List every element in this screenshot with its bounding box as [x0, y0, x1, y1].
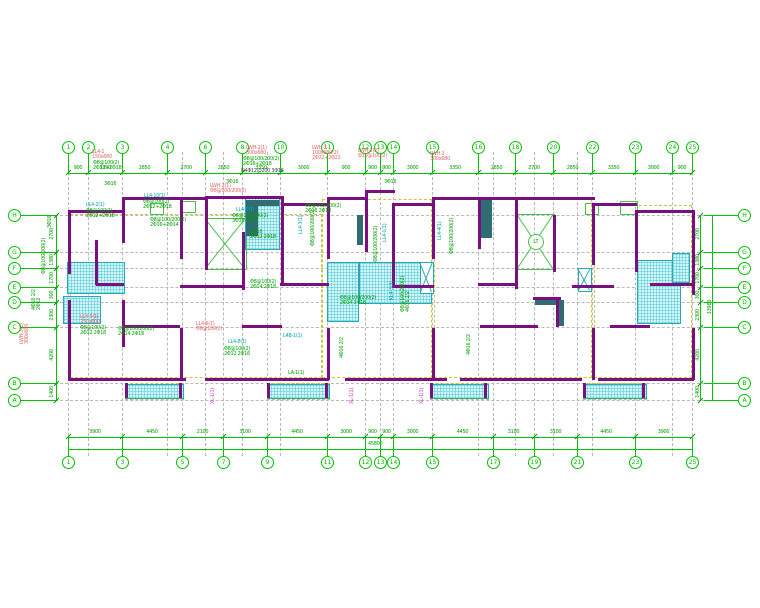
dim-text: 2300 [50, 309, 55, 321]
grid-bubble-bottom-5: 5 [176, 456, 189, 469]
axis-stem [20, 400, 56, 401]
grid-bubble-bottom-17: 17 [487, 456, 500, 469]
wall-fill [480, 200, 492, 238]
beam-label: Φ8@100(2) 2Φ12 2Φ16 [224, 347, 250, 357]
grid-bubble-bottom-25: 25 [686, 456, 699, 469]
grid-bubble-bottom-11: 11 [321, 456, 334, 469]
shear-wall [432, 197, 435, 259]
axis-stem [692, 153, 693, 173]
beam-label: XL-1(1) [211, 388, 216, 404]
axis-stem [635, 438, 636, 456]
axis-stem [122, 153, 123, 173]
axis-stem [393, 153, 394, 173]
beam-label: 4Φ16 2/2 2Φ12 [32, 289, 42, 310]
dim-text: 3100 [239, 430, 251, 435]
dim-text: 4450 [291, 430, 303, 435]
dim-text: 2850 [218, 166, 230, 171]
room-outline [70, 214, 322, 378]
beam-label: LWH-3 100x680(2) 2Φ22+2Φ22 [312, 146, 340, 162]
elevator-symbol: LT [528, 234, 544, 250]
axis-stem [432, 438, 433, 456]
shear-wall [553, 215, 556, 272]
shear-wall [592, 328, 595, 380]
shear-wall [242, 232, 245, 290]
shear-wall [281, 196, 284, 286]
shear-wall [480, 325, 538, 328]
beam-label: Φ8@100(2) 2Φ12+2Φ18 [143, 200, 171, 210]
dim-text: 900 [382, 166, 391, 171]
grid-bubble-right-C: C [738, 321, 751, 334]
beam-label: LA-1(1) [288, 371, 304, 376]
axis-stem [478, 153, 479, 173]
axis-stem [577, 438, 578, 456]
shear-wall [392, 285, 434, 288]
dim-text: 3900 [658, 430, 670, 435]
beam-label: Φ8@100/200(2) [42, 238, 47, 274]
grid-bubble-top-23: 23 [629, 141, 642, 154]
grid-bubble-top-6: 6 [199, 141, 212, 154]
shear-wall [592, 203, 595, 265]
axis-stem [122, 438, 123, 456]
shear-wall [68, 210, 71, 274]
axis-line-horizontal-A [30, 400, 730, 401]
beam-label: Φ8@100(2) 2Φ12+2Φ18 [86, 209, 114, 219]
shear-wall [327, 328, 330, 380]
grid-bubble-top-10: 10 [274, 141, 287, 154]
dim-text: 4450 [600, 430, 612, 435]
shear-wall [478, 283, 517, 286]
grid-bubble-right-F: F [738, 262, 751, 275]
dim-text: 3100 [508, 430, 520, 435]
beam-label: XL-1(1) [350, 388, 355, 404]
dim-text: 2850 [567, 166, 579, 171]
shear-wall [327, 197, 367, 200]
grid-bubble-top-25: 25 [686, 141, 699, 154]
shear-wall [635, 210, 638, 272]
axis-stem [553, 153, 554, 173]
beam-label: LL4-5(1) 250x600 [80, 315, 100, 325]
axis-stem [704, 383, 738, 384]
beam-label: LL4-8(1) [228, 340, 246, 345]
shear-wall [325, 383, 328, 398]
dim-text: 4450 [146, 430, 158, 435]
grid-bubble-bottom-9: 9 [261, 456, 274, 469]
beam-label: N4Φ12@200 3Φ16 [241, 169, 284, 174]
axis-stem [68, 438, 69, 456]
beam-label: Φ8@100/200(2) 2Φ16 2Φ18 [305, 204, 341, 214]
shear-wall [68, 300, 71, 381]
axis-stem [365, 438, 366, 456]
grid-bubble-left-A: A [8, 394, 21, 407]
grid-bubble-right-D: D [738, 296, 751, 309]
beam-label: L4B-1(1) [283, 334, 302, 339]
shear-wall [484, 383, 487, 398]
shear-wall [650, 283, 694, 286]
grid-bubble-top-16: 16 [472, 141, 485, 154]
dim-text: 3000 [340, 430, 352, 435]
beam-label: 4Φ16 2/2 [467, 334, 472, 355]
shear-wall [635, 210, 694, 213]
grid-bubble-bottom-12: 12 [359, 456, 372, 469]
shear-wall [68, 378, 186, 381]
dim-text: 900 [678, 166, 687, 171]
beam-label: XL-1(1) [420, 388, 425, 404]
beam-label: Φ8@100/200(2) 2Φ14 2Φ18 [118, 327, 154, 337]
dim-text: 4200 [50, 349, 55, 361]
slab-hatch [672, 253, 690, 283]
dim-text: 3350 [449, 166, 461, 171]
shear-wall [205, 196, 208, 270]
grid-bubble-top-14: 14 [387, 141, 400, 154]
dim-text: 2700 [528, 166, 540, 171]
shear-wall [392, 203, 395, 287]
shear-wall [692, 328, 695, 380]
shear-wall [393, 203, 434, 206]
beam-label: LWH-2(2) Φ10@100(2) [358, 149, 387, 159]
shear-wall [122, 197, 125, 243]
axis-stem [534, 438, 535, 456]
dim-text: 3000 [298, 166, 310, 171]
beam-label: Φ8@100/200(2) 2Φ14 2Φ18 [340, 296, 376, 306]
grid-bubble-right-B: B [738, 377, 751, 390]
shear-wall [610, 325, 650, 328]
shear-wall [205, 378, 329, 381]
shear-wall [122, 300, 125, 347]
shear-wall [432, 328, 435, 380]
dim-text: 3000 [407, 166, 419, 171]
grid-bubble-left-H: H [8, 209, 21, 222]
shear-wall [572, 285, 614, 288]
grid-bubble-bottom-14: 14 [387, 456, 400, 469]
dim-text: 4450 [457, 430, 469, 435]
axis-stem [635, 153, 636, 173]
grid-bubble-bottom-3: 3 [116, 456, 129, 469]
axis-stem [182, 438, 183, 456]
shear-wall [478, 197, 481, 249]
grid-bubble-right-G: G [738, 246, 751, 259]
axis-stem [692, 438, 693, 456]
grid-bubble-bottom-19: 19 [528, 456, 541, 469]
beam-label: 3Φ16 2Φ12 2Φ18 [250, 230, 276, 240]
shear-wall [267, 383, 270, 398]
shear-wall [642, 383, 645, 398]
axis-stem [20, 383, 56, 384]
beam-label: Φ8@100/200(2) 4Φ16 2/2 [401, 276, 411, 312]
axis-stem [704, 252, 738, 253]
dim-text: 3000 [648, 166, 660, 171]
shear-wall [125, 383, 128, 398]
shear-wall [179, 383, 182, 398]
beam-label: LL4-1 150x680 [92, 150, 112, 160]
shear-wall [180, 328, 183, 380]
dim-text: 3100 [550, 430, 562, 435]
grid-bubble-left-G: G [8, 246, 21, 259]
grid-bubble-top-20: 20 [547, 141, 560, 154]
slab-hatch [125, 384, 184, 399]
dim-text: 3000 [407, 430, 419, 435]
axis-stem [704, 287, 738, 288]
dim-text: 1400 [50, 386, 55, 398]
beam-label: KL4-3(3) [390, 281, 395, 300]
dim-line-right-total [712, 215, 713, 400]
grid-bubble-left-F: F [8, 262, 21, 275]
dim-text: 900 [382, 430, 391, 435]
axis-stem [20, 252, 56, 253]
grid-bubble-top-24: 24 [666, 141, 679, 154]
grid-bubble-bottom-21: 21 [571, 456, 584, 469]
shear-wall [515, 197, 518, 289]
beam-label: Φ8@100/200(2) [450, 218, 455, 254]
beam-label: 3Φ16 [104, 182, 116, 187]
beam-label: 3Φ16 [384, 180, 396, 185]
grid-bubble-left-E: E [8, 281, 21, 294]
shear-wall [95, 240, 98, 285]
dim-line-right [700, 215, 701, 400]
slab-hatch [583, 384, 647, 399]
axis-stem [327, 438, 328, 456]
dim-line-left [56, 215, 57, 400]
beam-label: LL4-1(1) [383, 224, 388, 242]
beam-label: Φ8@100(2) 2Φ12 2Φ18 [80, 326, 106, 336]
shear-wall [365, 190, 368, 252]
grid-bubble-top-22: 22 [586, 141, 599, 154]
axis-stem [20, 268, 56, 269]
shear-wall [583, 383, 586, 398]
dim-text: 2850 [491, 166, 503, 171]
grid-bubble-bottom-7: 7 [217, 456, 230, 469]
axis-stem [267, 438, 268, 456]
beam-label: Φ8@100/200(2) [311, 210, 316, 246]
grid-bubble-bottom-13: 13 [374, 456, 387, 469]
shear-wall [592, 203, 637, 206]
wall-fill [357, 215, 363, 245]
shear-wall [556, 297, 559, 327]
grid-bubble-bottom-15: 15 [426, 456, 439, 469]
dim-text: 2100 [197, 430, 209, 435]
shear-wall [515, 197, 595, 200]
dim-text: 900 [74, 166, 83, 171]
axis-line-vertical [692, 152, 693, 456]
beam-label: Φ8@100(2) 2Φ12+2Φ18 [93, 161, 121, 171]
dim-text: 2850 [139, 166, 151, 171]
shear-wall [598, 378, 694, 381]
dim-text: 900 [368, 430, 377, 435]
dim-text: 2700 [50, 228, 55, 240]
shear-wall [96, 283, 124, 286]
shear-wall [280, 283, 329, 286]
dim-text: 1380 [50, 254, 55, 266]
slab-hatch [327, 262, 359, 322]
axis-stem [493, 438, 494, 456]
beam-label: Φ8@100(2) 2Φ14 2Φ18 [250, 280, 276, 290]
axis-stem [20, 287, 56, 288]
grid-bubble-top-4: 4 [161, 141, 174, 154]
axis-stem [672, 153, 673, 173]
beam-label: 3Φ16 [48, 216, 53, 228]
dim-text: 900 [342, 166, 351, 171]
beam-label: LL4-4(1) [438, 222, 443, 240]
axis-stem [223, 438, 224, 456]
slab-hatch [430, 384, 489, 399]
dim-text: 3350 [608, 166, 620, 171]
grid-bubble-left-D: D [8, 296, 21, 309]
drawing-canvas[interactable]: LT12346810111213141516182022232425900335… [0, 0, 760, 608]
axis-stem [592, 153, 593, 173]
grid-bubble-right-H: H [738, 209, 751, 222]
grid-bubble-left-B: B [8, 377, 21, 390]
axis-stem [704, 327, 738, 328]
beam-label: Φ8@100/200(2) 3Φ16 2Φ14 [232, 214, 268, 224]
axis-stem [68, 153, 69, 173]
beam-label: Φ8@100/200(2) 2Φ16+2Φ18 [243, 157, 279, 167]
axis-stem [88, 153, 89, 173]
dim-text: 1700 [50, 272, 55, 284]
axis-stem [393, 438, 394, 456]
dim-text: 2700 [180, 166, 192, 171]
shear-wall [242, 325, 282, 328]
shear-wall [692, 210, 695, 295]
grid-bubble-top-1: 1 [62, 141, 75, 154]
axis-stem [380, 438, 381, 456]
beam-label: 4Φ16 2/2 [340, 337, 345, 358]
dim-text: 900 [368, 166, 377, 171]
beam-label: LWH-2(1) 300x680 [246, 146, 267, 156]
axis-stem [167, 153, 168, 173]
grid-bubble-top-3: 3 [116, 141, 129, 154]
beam-label: LL4-3(1) [299, 216, 304, 234]
shear-wall [430, 383, 433, 398]
grid-bubble-top-18: 18 [509, 141, 522, 154]
shear-wall [180, 285, 242, 288]
grid-bubble-bottom-23: 23 [629, 456, 642, 469]
beam-label: Φ8@100/200(2) 2Φ16+2Φ14 [150, 218, 186, 228]
grid-bubble-right-A: A [738, 394, 751, 407]
beam-label: LWH-1 300x680 [430, 152, 450, 162]
wall-fill [253, 200, 279, 206]
axis-stem [515, 153, 516, 173]
slab-hatch [267, 384, 330, 399]
axis-stem [704, 268, 738, 269]
axis-stem [704, 215, 738, 216]
dim-text: 300 [50, 290, 55, 299]
shear-wall [205, 196, 283, 199]
shear-wall [432, 197, 517, 200]
axis-stem [704, 302, 738, 303]
dim-text: 3900 [89, 430, 101, 435]
room-outline [434, 199, 592, 378]
grid-bubble-right-E: E [738, 281, 751, 294]
axis-stem [205, 153, 206, 173]
beam-label: LWH-2(1) Φ8@100/200(2) [210, 184, 246, 194]
shear-wall [460, 378, 582, 381]
beam-label: Φ8@100/200(2) [374, 226, 379, 262]
beam-label: LL4-6(1) Φ8@100(2) [196, 322, 222, 332]
grid-bubble-bottom-1: 1 [62, 456, 75, 469]
beam-label: LWH-3(2) 300x680 [20, 323, 30, 344]
axis-stem [704, 400, 738, 401]
shear-wall [365, 190, 395, 193]
